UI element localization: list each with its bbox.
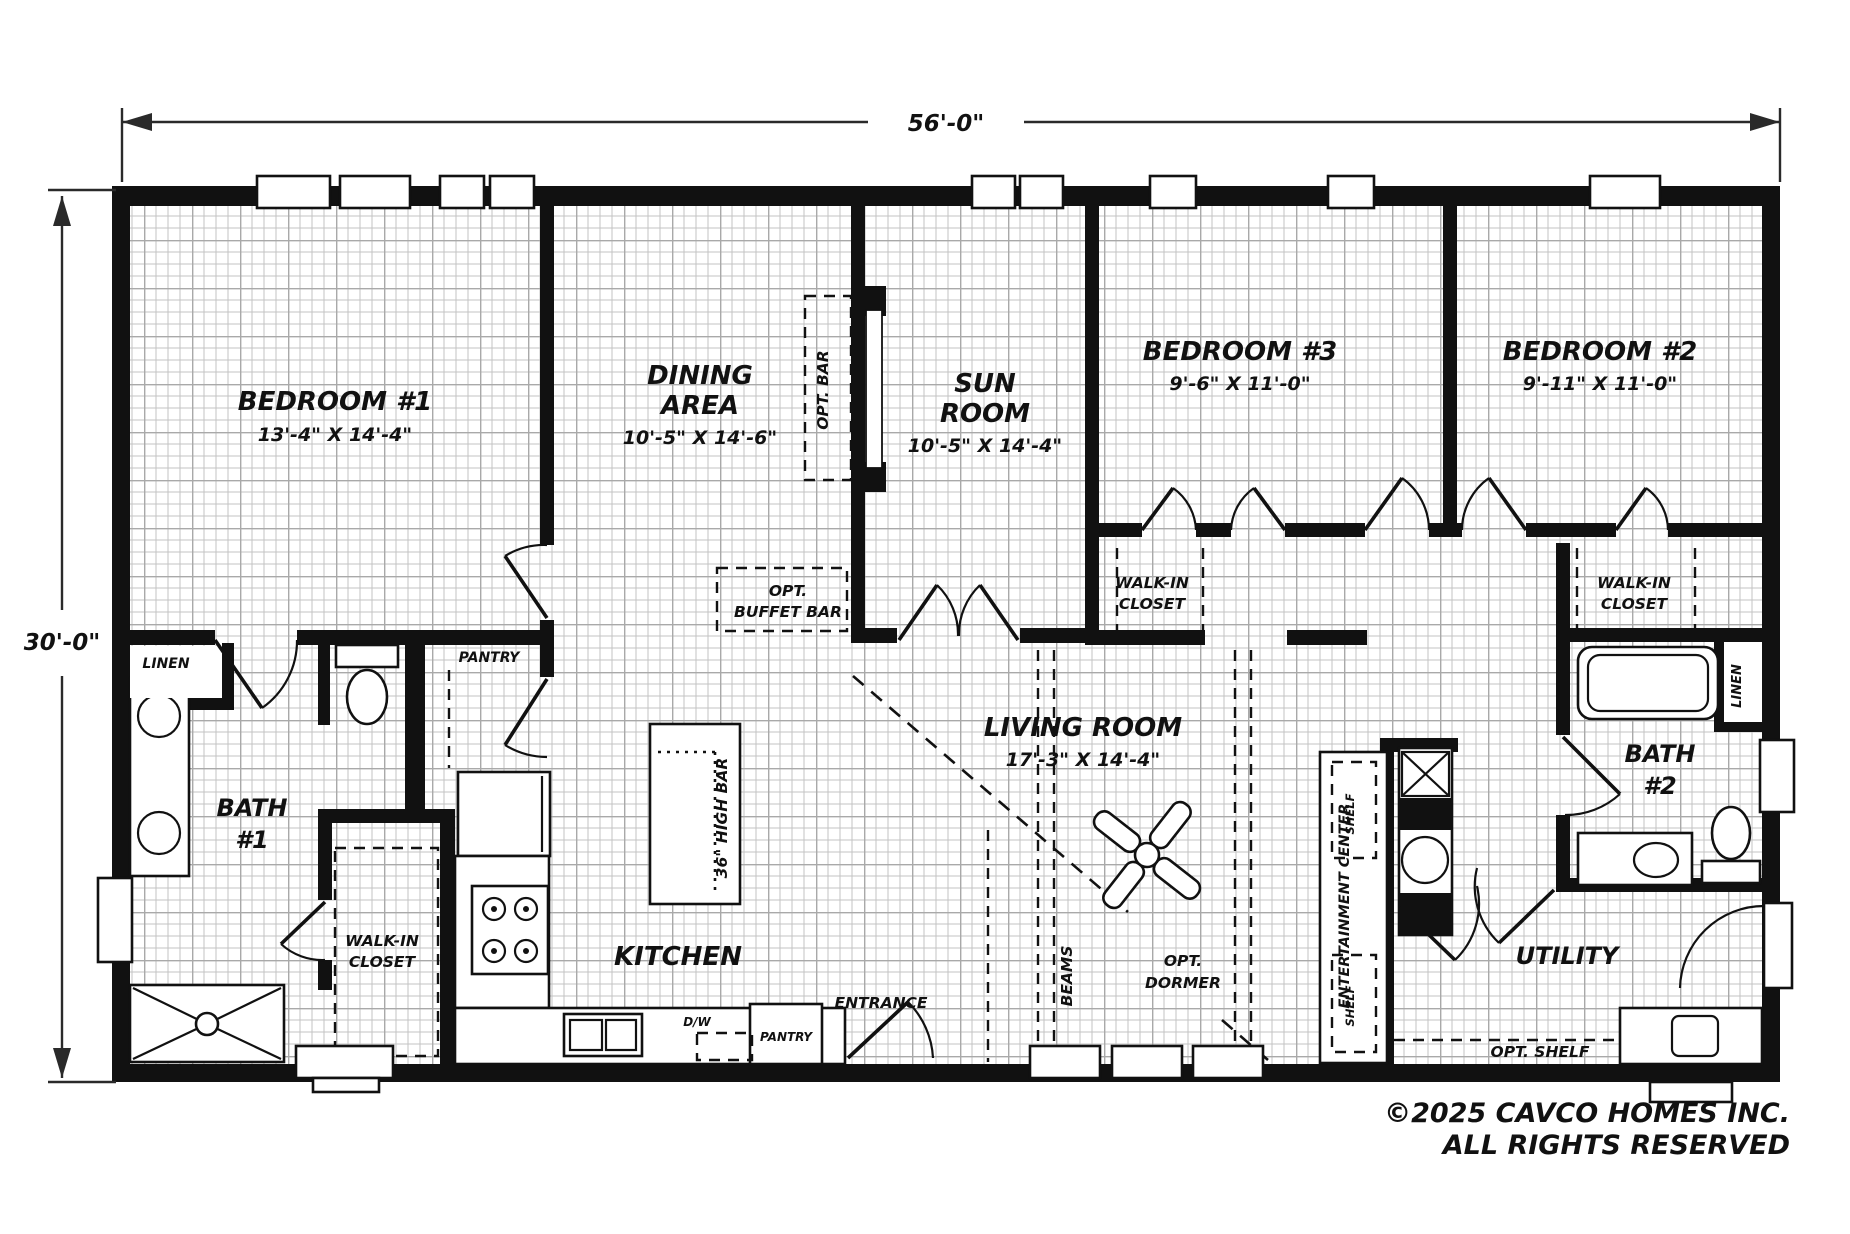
label-sunroom-1: SUN bbox=[954, 369, 1016, 399]
dimension-height: 30'-0" bbox=[24, 630, 101, 656]
window bbox=[1112, 1046, 1182, 1078]
label-kitchen: KITCHEN bbox=[614, 942, 742, 972]
label-opt-dormer-1: OPT. bbox=[1164, 952, 1202, 970]
label-opt-shelf: OPT. SHELF bbox=[1491, 1043, 1590, 1061]
label-bedroom1: BEDROOM #1 bbox=[238, 387, 433, 417]
label-bedroom3: BEDROOM #3 bbox=[1143, 337, 1338, 367]
label-shelf-bottom: SHELF bbox=[1343, 985, 1357, 1026]
kitchen-range bbox=[472, 886, 548, 974]
label-bath1-2: #1 bbox=[235, 826, 268, 854]
sunroom-interior-window bbox=[862, 286, 886, 492]
label-opt-bar: OPT. BAR bbox=[814, 350, 832, 430]
linen1-floor bbox=[130, 646, 222, 698]
window bbox=[98, 878, 132, 962]
window bbox=[1150, 176, 1196, 208]
label-bedroom2-size: 9'-11" X 11'-0" bbox=[1523, 373, 1677, 395]
window bbox=[972, 176, 1015, 208]
label-walkin3-1: WALK-IN bbox=[1115, 574, 1189, 592]
label-bedroom2: BEDROOM #2 bbox=[1503, 337, 1698, 367]
label-linen1: LINEN bbox=[142, 656, 189, 672]
copyright: ©2025 CAVCO HOMES INC. ALL RIGHTS RESERV… bbox=[1384, 1098, 1790, 1161]
window bbox=[1760, 740, 1794, 812]
window bbox=[440, 176, 484, 208]
bath2-tub bbox=[1578, 647, 1718, 719]
label-linen2: LINEN bbox=[1730, 664, 1745, 708]
label-living: LIVING ROOM bbox=[984, 713, 1182, 743]
label-pantry1: PANTRY bbox=[459, 650, 522, 666]
label-walkin1-2: CLOSET bbox=[349, 953, 417, 971]
window bbox=[1020, 176, 1063, 208]
label-bedroom3-size: 9'-6" X 11'-0" bbox=[1169, 373, 1310, 395]
label-bath2-1: BATH bbox=[1624, 740, 1695, 768]
bath1-toilet-tank bbox=[336, 645, 398, 667]
label-sunroom-size: 10'-5" X 14'-4" bbox=[908, 435, 1062, 457]
label-walkin2-2: CLOSET bbox=[1601, 595, 1669, 613]
label-walkin1-1: WALK-IN bbox=[345, 932, 419, 950]
label-sunroom-2: ROOM bbox=[940, 399, 1030, 429]
window bbox=[1328, 176, 1374, 208]
window bbox=[1030, 1046, 1100, 1078]
label-dining-size: 10'-5" X 14'-6" bbox=[623, 427, 777, 449]
bath2-toilet-tank bbox=[1702, 861, 1760, 883]
label-dishwasher: D/W bbox=[683, 1015, 711, 1029]
label-opt-buffet-2: BUFFET BAR bbox=[734, 603, 842, 621]
label-bath2-2: #2 bbox=[1643, 772, 1676, 800]
kitchen-fridge bbox=[458, 772, 550, 856]
label-pantry2: PANTRY bbox=[760, 1030, 813, 1044]
window bbox=[1193, 1046, 1263, 1078]
label-living-size: 17'-3" X 14'-4" bbox=[1006, 749, 1160, 771]
copyright-line1: ©2025 CAVCO HOMES INC. bbox=[1384, 1098, 1790, 1129]
label-utility: UTILITY bbox=[1516, 942, 1621, 970]
label-opt-dormer-2: DORMER bbox=[1145, 974, 1221, 992]
window bbox=[340, 176, 410, 208]
label-walkin3-2: CLOSET bbox=[1119, 595, 1187, 613]
window bbox=[1590, 176, 1660, 208]
label-high-bar: 36" HIGH BAR bbox=[713, 758, 731, 879]
back-door-leaf bbox=[1764, 903, 1792, 988]
label-beams: BEAMS bbox=[1058, 946, 1076, 1007]
floorplan-drawing: 56'-0" 30'-0" BEDROOM #1 13'-4" X 14'-4"… bbox=[0, 0, 1850, 1234]
dimension-width: 56'-0" bbox=[908, 111, 985, 137]
label-entrance: ENTRANCE bbox=[835, 994, 928, 1012]
label-opt-buffet-1: OPT. bbox=[769, 582, 807, 600]
label-shelf-top: SHELF bbox=[1343, 793, 1357, 834]
window bbox=[490, 176, 534, 208]
bath2-toilet bbox=[1712, 807, 1750, 859]
label-bath1-1: BATH bbox=[216, 794, 287, 822]
label-bedroom1-size: 13'-4" X 14'-4" bbox=[258, 424, 412, 446]
kitchen-sink bbox=[564, 1014, 642, 1056]
copyright-line2: ALL RIGHTS RESERVED bbox=[1441, 1130, 1790, 1161]
label-dining-1: DINING bbox=[647, 361, 753, 391]
window bbox=[296, 1046, 393, 1078]
bath1-shower bbox=[130, 985, 284, 1062]
utility-appliance bbox=[1620, 1008, 1762, 1064]
label-dining-2: AREA bbox=[659, 391, 739, 421]
window bbox=[257, 176, 330, 208]
bath1-toilet bbox=[347, 670, 387, 724]
floorplan-page: 56'-0" 30'-0" BEDROOM #1 13'-4" X 14'-4"… bbox=[0, 0, 1850, 1234]
washer-dryer bbox=[1399, 748, 1452, 935]
label-walkin2-1: WALK-IN bbox=[1597, 574, 1671, 592]
window-sill bbox=[313, 1078, 379, 1092]
